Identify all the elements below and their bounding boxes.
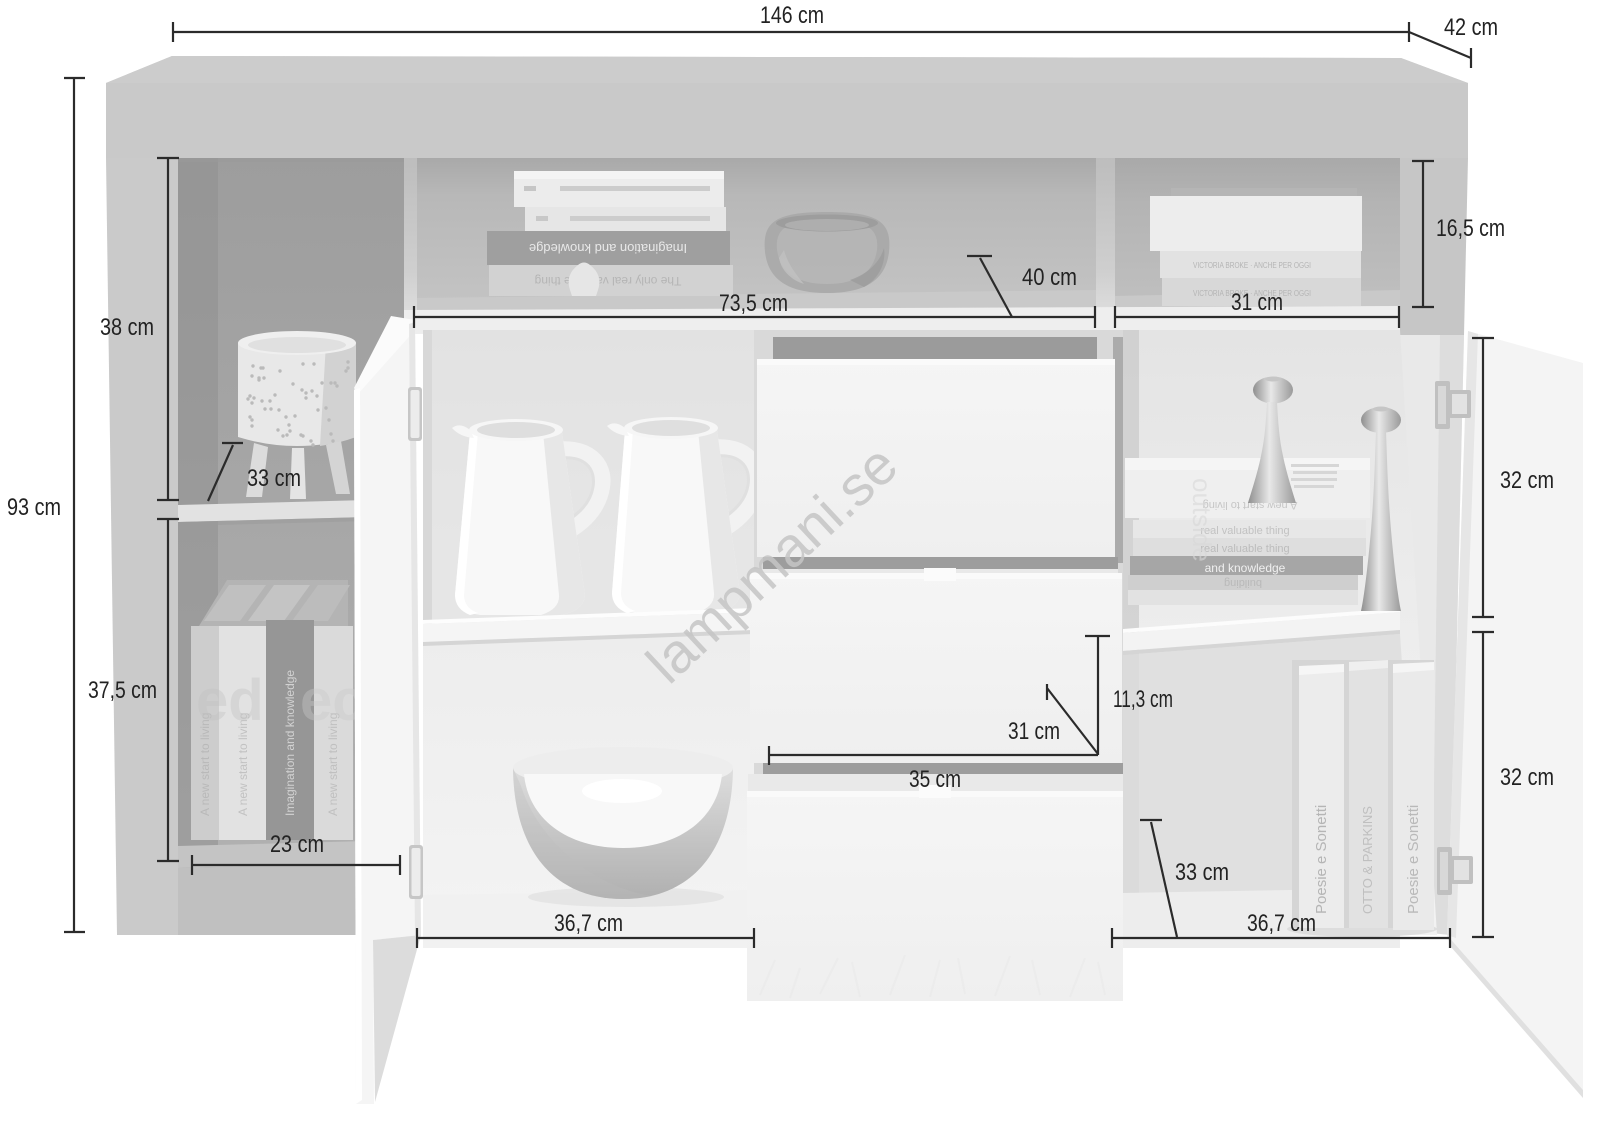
svg-text:31 cm: 31 cm <box>1231 289 1283 316</box>
svg-text:33 cm: 33 cm <box>1175 859 1229 886</box>
svg-text:33 cm: 33 cm <box>247 465 301 492</box>
svg-text:building: building <box>1224 577 1262 589</box>
svg-text:32 cm: 32 cm <box>1500 467 1554 494</box>
svg-text:16,5 cm: 16,5 cm <box>1436 215 1505 242</box>
svg-text:40 cm: 40 cm <box>1022 264 1077 291</box>
svg-text:146 cm: 146 cm <box>760 2 824 29</box>
svg-text:outside: outside <box>1187 478 1217 562</box>
svg-text:36,7 cm: 36,7 cm <box>1247 910 1316 937</box>
svg-text:93 cm: 93 cm <box>7 494 61 521</box>
svg-text:36,7 cm: 36,7 cm <box>554 910 623 937</box>
svg-text:11,3 cm: 11,3 cm <box>1113 686 1173 713</box>
svg-text:VICTORIA BROKE · ANCHE PER OGG: VICTORIA BROKE · ANCHE PER OGGI <box>1193 261 1311 270</box>
svg-text:73,5 cm: 73,5 cm <box>719 290 788 317</box>
svg-text:ed: ed <box>196 668 264 733</box>
svg-text:The only real valuable thing: The only real valuable thing <box>535 274 682 288</box>
svg-text:31 cm: 31 cm <box>1008 718 1060 745</box>
svg-text:32 cm: 32 cm <box>1500 764 1554 791</box>
svg-text:35 cm: 35 cm <box>909 766 961 793</box>
svg-text:and knowledge: and knowledge <box>1205 561 1286 575</box>
svg-text:Imagination and knowledge: Imagination and knowledge <box>529 241 687 256</box>
svg-text:Poesie e Sonetti: Poesie e Sonetti <box>1313 805 1330 914</box>
svg-text:38 cm: 38 cm <box>100 314 154 341</box>
svg-text:Imagination and knowledge: Imagination and knowledge <box>283 670 297 816</box>
svg-text:37,5 cm: 37,5 cm <box>88 677 157 704</box>
svg-text:OTTO & PARKINS: OTTO & PARKINS <box>1360 806 1375 914</box>
svg-text:42 cm: 42 cm <box>1444 14 1498 41</box>
svg-text:23 cm: 23 cm <box>270 831 324 858</box>
svg-text:Poesie e Sonetti: Poesie e Sonetti <box>1405 805 1422 914</box>
